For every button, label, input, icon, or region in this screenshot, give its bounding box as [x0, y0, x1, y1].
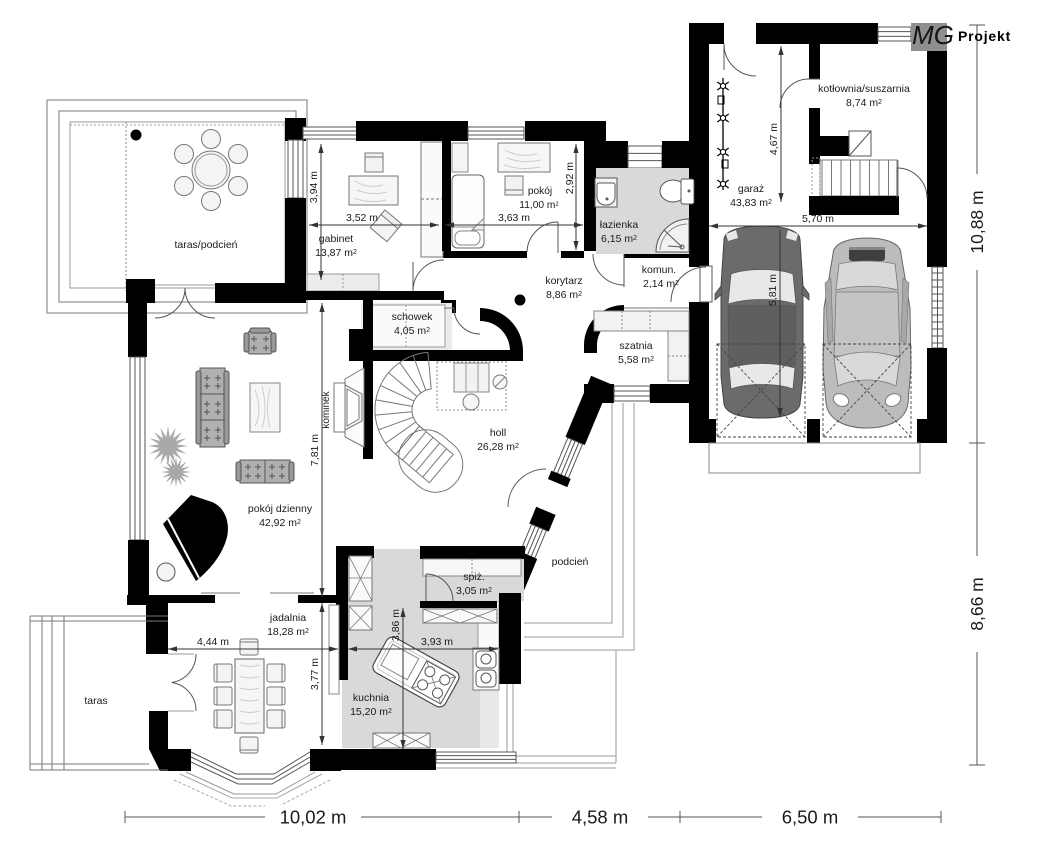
svg-text:3,93 m: 3,93 m	[421, 636, 453, 648]
svg-text:8,86 m2: 8,86 m2	[546, 289, 582, 301]
svg-text:10,02 m: 10,02 m	[280, 807, 347, 828]
svg-text:8,74 m2: 8,74 m2	[846, 97, 882, 109]
svg-text:pokój dzienny: pokój dzienny	[248, 503, 313, 515]
svg-text:taras: taras	[84, 695, 107, 707]
svg-text:7,81 m: 7,81 m	[309, 434, 321, 466]
svg-text:6,50 m: 6,50 m	[782, 807, 839, 828]
svg-text:gabinet: gabinet	[319, 233, 354, 245]
svg-text:10,88 m: 10,88 m	[967, 190, 987, 253]
svg-text:kominek: kominek	[321, 390, 332, 428]
svg-text:podcień: podcień	[552, 556, 589, 568]
svg-text:spiż.: spiż.	[463, 571, 485, 583]
svg-text:taras/podcień: taras/podcień	[174, 239, 237, 251]
svg-text:pokój: pokój	[528, 186, 552, 197]
svg-text:43,83 m2: 43,83 m2	[730, 197, 772, 209]
svg-text:Projekt: Projekt	[958, 28, 1011, 44]
svg-text:3,86 m: 3,86 m	[390, 609, 402, 641]
svg-text:3,05 m2: 3,05 m2	[456, 585, 492, 597]
svg-text:42,92 m2: 42,92 m2	[259, 517, 301, 529]
svg-text:5,70 m: 5,70 m	[802, 213, 834, 225]
svg-text:4,67 m: 4,67 m	[768, 123, 780, 155]
svg-text:kuchnia: kuchnia	[353, 692, 389, 704]
svg-text:2,14 m2: 2,14 m2	[643, 278, 679, 290]
svg-text:4,44 m: 4,44 m	[197, 636, 229, 648]
svg-text:szatnia: szatnia	[619, 340, 652, 352]
svg-text:4,58 m: 4,58 m	[572, 807, 629, 828]
svg-text:holl: holl	[490, 427, 506, 439]
svg-text:MG: MG	[912, 20, 954, 50]
svg-text:komun.: komun.	[642, 264, 676, 276]
svg-text:jadalnia: jadalnia	[269, 612, 306, 624]
svg-text:schowek: schowek	[392, 311, 434, 323]
svg-text:15,20 m2: 15,20 m2	[350, 706, 392, 718]
svg-text:korytarz: korytarz	[545, 275, 582, 287]
svg-text:8,66 m: 8,66 m	[967, 577, 987, 631]
svg-text:18,28 m2: 18,28 m2	[267, 626, 309, 638]
svg-text:5,58 m2: 5,58 m2	[618, 354, 654, 366]
svg-text:4,05 m2: 4,05 m2	[394, 325, 430, 337]
svg-text:5,81 m: 5,81 m	[767, 274, 779, 306]
svg-text:11,00 m2: 11,00 m2	[519, 200, 559, 211]
svg-text:3,52 m: 3,52 m	[346, 212, 378, 224]
svg-text:6,15 m2: 6,15 m2	[601, 233, 637, 245]
svg-text:2,92 m: 2,92 m	[564, 162, 576, 194]
svg-text:garaż: garaż	[738, 183, 764, 195]
svg-text:3,63 m: 3,63 m	[498, 212, 530, 224]
svg-text:łazienka: łazienka	[600, 219, 639, 231]
svg-text:26,28 m2: 26,28 m2	[477, 441, 519, 453]
svg-text:3,77 m: 3,77 m	[309, 658, 321, 690]
svg-text:3,94 m: 3,94 m	[308, 171, 320, 203]
svg-text:kotłownia/suszarnia: kotłownia/suszarnia	[818, 83, 910, 95]
